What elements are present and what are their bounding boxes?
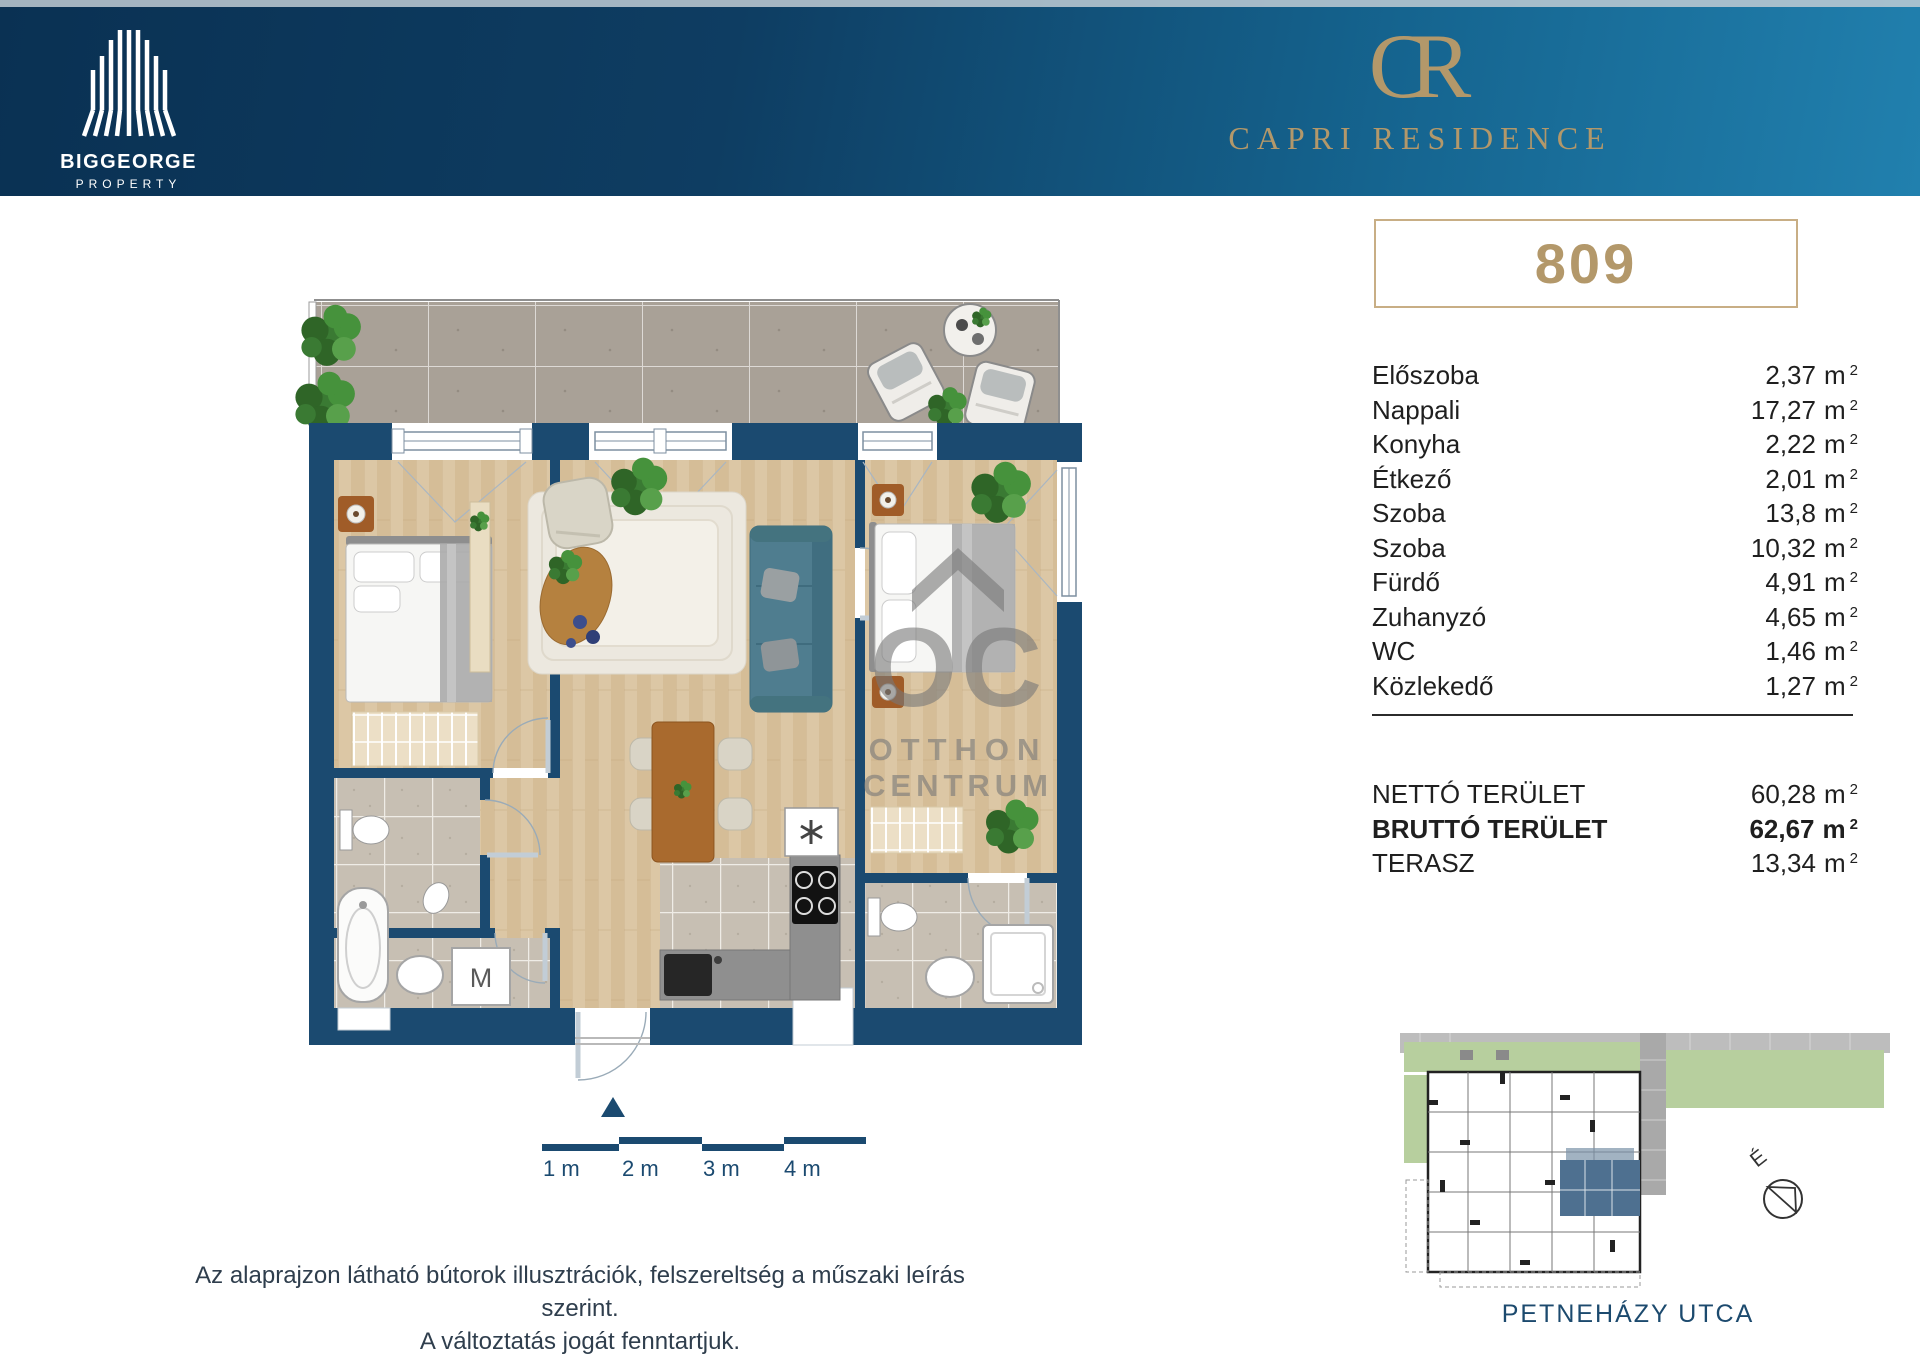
compass: É	[1746, 1145, 1802, 1218]
area-row: Fürdő4,91m2	[1372, 567, 1858, 602]
area-totals: NETTÓ TERÜLET60,28m2BRUTTÓ TERÜLET62,67m…	[1372, 779, 1858, 883]
area-row: Étkező2,01m2	[1372, 464, 1858, 499]
area-row: Közlekedő1,27m2	[1372, 671, 1858, 706]
area-row: Konyha2,22m2	[1372, 429, 1858, 464]
project-logo: CR CAPRI RESIDENCE	[1215, 18, 1625, 157]
brand-name: BIGGEORGE	[46, 151, 211, 174]
wc-toilet	[340, 810, 352, 850]
unit-number-box: 809	[1374, 219, 1798, 308]
area-row: Szoba10,32m2	[1372, 533, 1858, 568]
wardrobe-bedroom1	[352, 712, 478, 766]
table-separator	[1372, 714, 1853, 716]
building-footprint	[1406, 1072, 1640, 1287]
svg-text:3 m: 3 m	[703, 1156, 740, 1181]
shower-room-sink	[926, 957, 974, 997]
unit-number: 809	[1535, 231, 1637, 296]
area-row: Zuhanyzó4,65m2	[1372, 602, 1858, 637]
entrance-marker-icon	[601, 1097, 625, 1117]
area-row: WC1,46m2	[1372, 636, 1858, 671]
watermark-monogram: OC	[870, 605, 1046, 730]
washing-machine-label: M	[470, 963, 493, 993]
svg-text:2 m: 2 m	[622, 1156, 659, 1181]
path	[1640, 1033, 1666, 1195]
shower-room-toilet	[868, 898, 880, 936]
svg-text:CENTRUM: CENTRUM	[863, 768, 1053, 803]
corridor-floor	[480, 778, 560, 938]
svg-text:OTTHON: OTTHON	[869, 732, 1048, 767]
wall-recess	[338, 1008, 390, 1030]
svg-text:4 m: 4 m	[784, 1156, 821, 1181]
brand-logo: BIGGEORGE PROPERTY	[46, 24, 211, 191]
header-banner: BIGGEORGE PROPERTY CR CAPRI RESIDENCE	[0, 0, 1920, 196]
terrace	[295, 300, 1059, 436]
area-row: BRUTTÓ TERÜLET62,67m2	[1372, 814, 1858, 849]
armchair	[541, 475, 615, 551]
scale-bar: 1 m 2 m 3 m 4 m	[542, 1137, 866, 1181]
room-area-list: Előszoba2,37m2Nappali17,27m2Konyha2,22m2…	[1372, 360, 1858, 705]
street-label: PETNEHÁZY UTCA	[1502, 1299, 1755, 1328]
floor-plan: M	[252, 296, 1102, 1182]
project-name: CAPRI RESIDENCE	[1215, 120, 1625, 157]
area-row: Szoba13,8m2	[1372, 498, 1858, 533]
highlighted-unit	[1560, 1160, 1640, 1216]
disclaimer: Az alaprajzon látható bútorok illusztrác…	[175, 1259, 985, 1358]
lawn	[1404, 1042, 1576, 1072]
bathroom-sink	[397, 956, 443, 994]
site-plan: É PETNEHÁZY UTCA	[1400, 1030, 1920, 1330]
svg-text:1 m: 1 m	[543, 1156, 580, 1181]
wardrobe-bedroom2	[870, 807, 963, 853]
compass-north-label: É	[1746, 1145, 1771, 1172]
biggeorge-building-icon	[69, 24, 189, 142]
kitchen-sink	[664, 954, 712, 996]
project-monogram: CR	[1215, 18, 1625, 114]
highlighted-unit-terrace	[1566, 1148, 1634, 1162]
sofa	[750, 526, 832, 712]
area-row: Nappali17,27m2	[1372, 395, 1858, 430]
header-top-strip	[0, 0, 1920, 7]
area-row: NETTÓ TERÜLET60,28m2	[1372, 779, 1858, 814]
area-row: Előszoba2,37m2	[1372, 360, 1858, 395]
disclaimer-line1: Az alaprajzon látható bútorok illusztrác…	[175, 1259, 985, 1325]
brand-subtitle: PROPERTY	[46, 177, 211, 191]
area-row: TERASZ13,34m2	[1372, 848, 1858, 883]
disclaimer-line2: A változtatás jogát fenntartjuk.	[175, 1325, 985, 1358]
lawn	[1662, 1050, 1884, 1108]
